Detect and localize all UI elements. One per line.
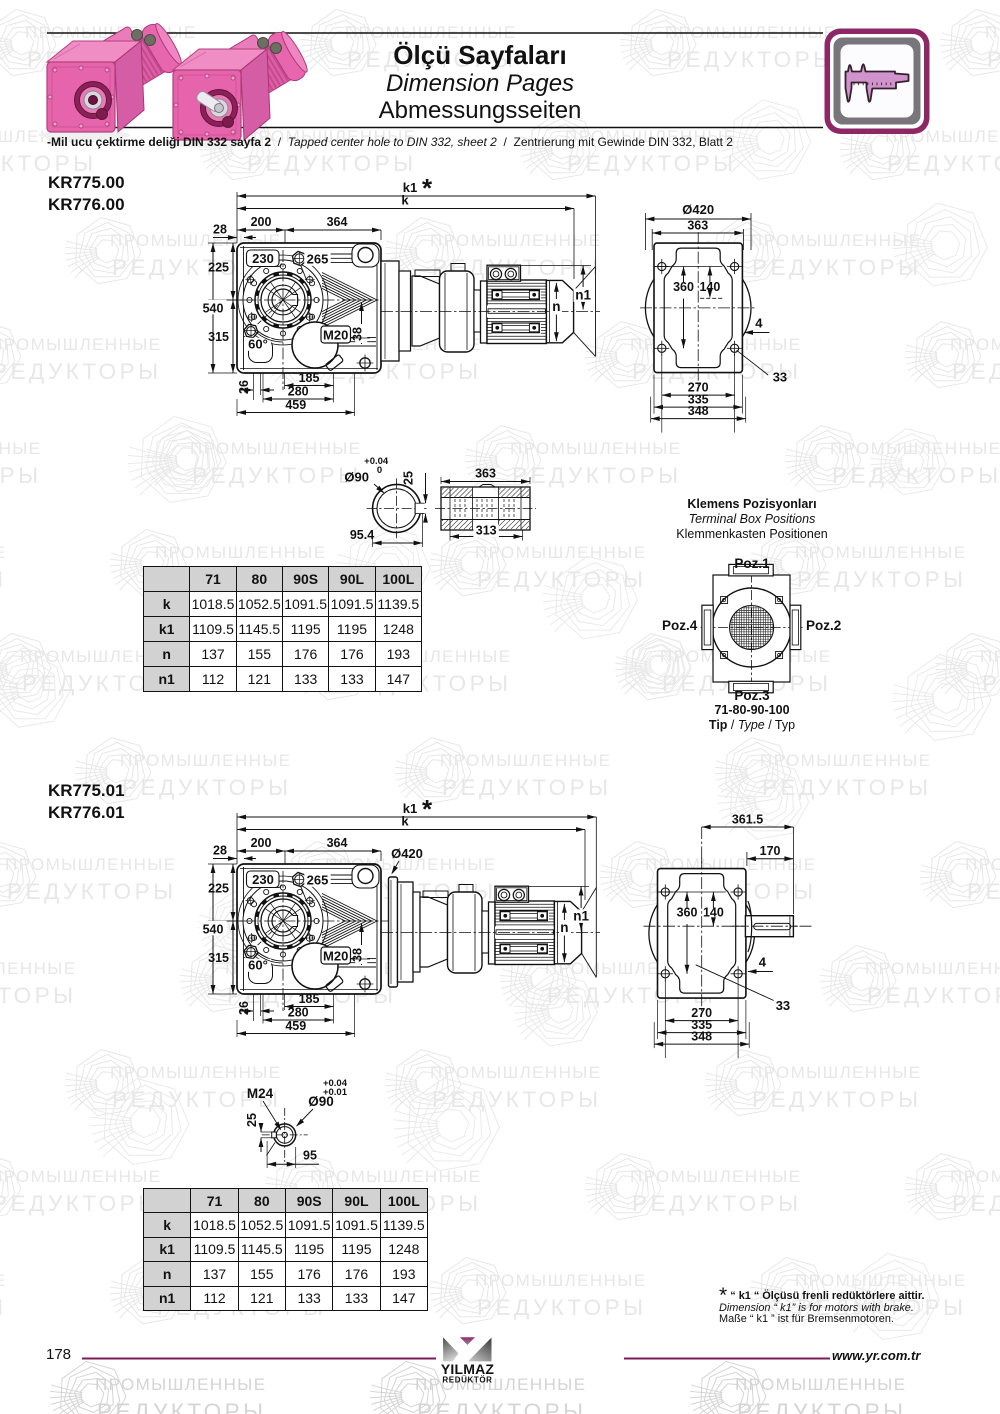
svg-text:230: 230	[252, 251, 274, 266]
svg-text:38: 38	[351, 327, 365, 341]
svg-text:360: 360	[673, 280, 694, 294]
svg-text:459: 459	[285, 398, 306, 412]
svg-text:33: 33	[773, 370, 787, 385]
svg-text:280: 280	[288, 1006, 309, 1020]
svg-text:225: 225	[208, 882, 229, 896]
svg-text:459: 459	[285, 1019, 306, 1033]
svg-text:Ø90: Ø90	[344, 470, 369, 485]
svg-text:n1: n1	[575, 288, 591, 303]
svg-text:25: 25	[402, 471, 416, 485]
svg-text:0: 0	[377, 465, 382, 476]
svg-text:140: 140	[699, 280, 720, 294]
svg-text:26: 26	[237, 380, 251, 394]
svg-text:348: 348	[688, 404, 709, 418]
svg-text:265: 265	[307, 252, 329, 267]
svg-text:540: 540	[203, 302, 224, 316]
svg-text:315: 315	[208, 951, 229, 965]
svg-text:95: 95	[303, 1149, 317, 1163]
svg-text:4: 4	[755, 316, 763, 331]
svg-text:Ø420: Ø420	[391, 846, 423, 861]
svg-text:265: 265	[307, 873, 329, 888]
svg-text:M20: M20	[323, 949, 348, 964]
svg-text:k: k	[401, 193, 409, 208]
svg-text:28: 28	[213, 223, 227, 237]
svg-text:60°: 60°	[248, 337, 268, 352]
svg-text:n: n	[560, 920, 568, 935]
svg-text:200: 200	[251, 836, 272, 850]
svg-text:230: 230	[252, 872, 274, 887]
svg-text:26: 26	[237, 1001, 251, 1015]
svg-text:540: 540	[203, 923, 224, 937]
svg-text:Ø90: Ø90	[308, 1094, 334, 1109]
svg-text:313: 313	[476, 524, 497, 538]
svg-text:185: 185	[299, 371, 320, 385]
svg-text:4: 4	[759, 955, 767, 970]
svg-text:38: 38	[351, 948, 365, 962]
svg-text:348: 348	[691, 1030, 712, 1044]
svg-text:315: 315	[208, 330, 229, 344]
svg-text:k: k	[401, 814, 409, 829]
svg-text:363: 363	[687, 219, 708, 233]
svg-text:*: *	[422, 173, 433, 203]
svg-text:364: 364	[327, 836, 348, 850]
svg-text:60°: 60°	[248, 958, 268, 973]
svg-text:360: 360	[677, 906, 698, 920]
svg-text:170: 170	[760, 844, 781, 858]
svg-text:25: 25	[245, 1113, 259, 1127]
svg-text:280: 280	[288, 385, 309, 399]
svg-text:M20: M20	[323, 328, 348, 343]
svg-text:n: n	[552, 299, 560, 314]
svg-text:*: *	[422, 794, 433, 824]
svg-text:M24: M24	[247, 1086, 274, 1101]
svg-text:28: 28	[213, 844, 227, 858]
svg-text:REDÜKTÖR: REDÜKTÖR	[442, 1376, 492, 1385]
svg-text:185: 185	[299, 992, 320, 1006]
svg-text:225: 225	[208, 261, 229, 275]
svg-text:n1: n1	[573, 909, 589, 924]
svg-text:95.4: 95.4	[350, 528, 374, 542]
svg-text:Ø420: Ø420	[682, 202, 714, 217]
svg-text:361.5: 361.5	[732, 813, 763, 827]
svg-text:140: 140	[703, 906, 724, 920]
svg-text:33: 33	[776, 998, 790, 1013]
svg-text:363: 363	[475, 467, 496, 481]
svg-text:364: 364	[327, 215, 348, 229]
svg-text:200: 200	[251, 215, 272, 229]
